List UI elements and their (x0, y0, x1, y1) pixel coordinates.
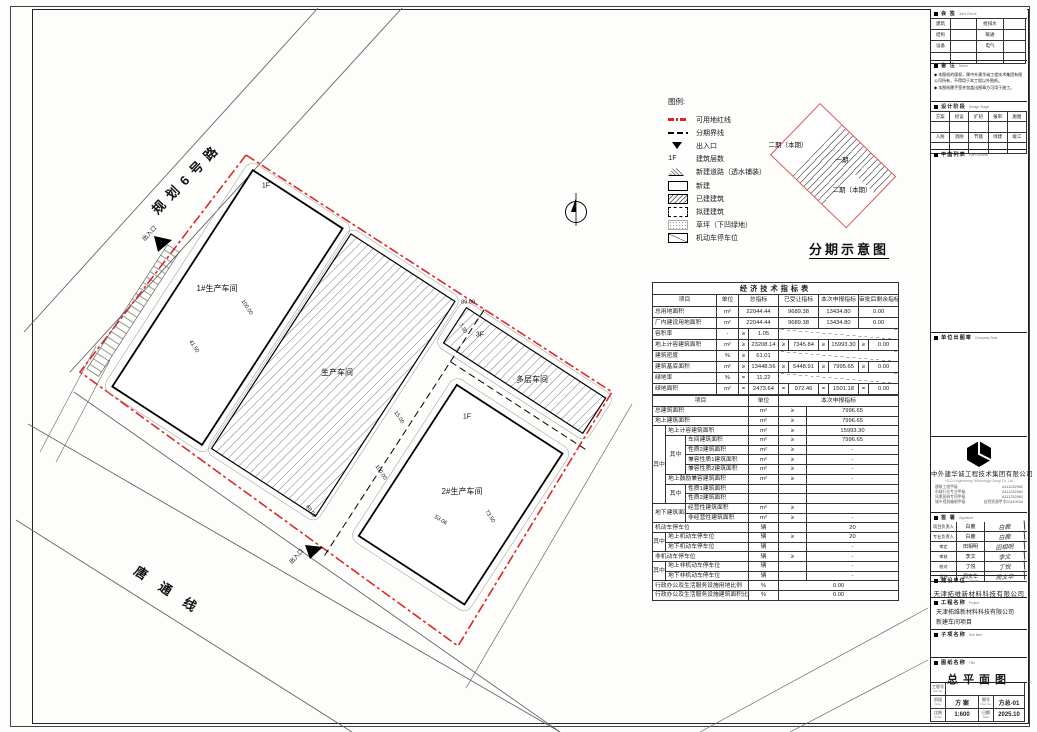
table-cell: 行政办公及生活服务设施用地比例 (653, 581, 749, 591)
table-cell: m² (749, 503, 779, 513)
table-cell: % (717, 373, 739, 384)
note-line: ◆ 本图纸需手签并加盖出图章方可用于施工。 (934, 85, 1024, 91)
company-name-en: HCCI Engineering Technology Group Co.,Lt… (931, 479, 1027, 483)
owner-title-en: Owner (969, 579, 979, 583)
table-row: 兼容性质1建筑面积m²≥- (653, 455, 899, 465)
design-stage-cell: 竣工 (1008, 133, 1027, 143)
table-cell: ≥ (779, 513, 807, 523)
subitem-value (931, 639, 1027, 642)
design-stage-cell: 绿建 (989, 133, 1008, 143)
table-row: 厂内建设用地面积m²22044.449689.3813434.800.00 (653, 318, 899, 329)
legend-item-label: 机动车停车位 (696, 233, 738, 243)
table-cell (779, 571, 807, 581)
owner-section: 建设单位 Owner 天津拓维新材料科技有限公司 (931, 576, 1027, 598)
table-cell: 0.00 (869, 384, 899, 395)
table-cell: 其中 (653, 426, 666, 504)
phasing-label: 一期 (836, 158, 849, 165)
table-cell: m² (749, 474, 779, 484)
title-block: 会 签 Joint Check 建筑给排水结构暖通设备电气 备 注 Notes … (930, 9, 1027, 722)
table-cell: ≥ (779, 362, 789, 373)
grass-legend-icon (668, 220, 690, 230)
table-cell: ≥ (779, 340, 789, 351)
newroad-legend-icon (668, 168, 690, 176)
signature-role: 审核 (931, 552, 957, 561)
table-cell: 辆 (749, 542, 779, 552)
table-row: 行政办公及生活服务设施用地比例%0.00 (653, 581, 899, 591)
table-row: 地下机动车停车位辆- (653, 542, 899, 552)
legend-item: 新建道路（透水铺装） (668, 166, 766, 179)
table-cell: 单位 (717, 295, 739, 307)
design-stage-cell (969, 122, 988, 132)
design-stage-cell: 节能 (969, 133, 988, 143)
table-cell: 其中 (653, 532, 666, 551)
table-cell: 车间建筑面积 (686, 436, 749, 446)
company-name: 中外建华诚工程技术集团有限公司 (931, 469, 1027, 478)
table-cell: 地上机动车停车位 (666, 532, 749, 542)
company-seal-section: 单位出图章 Company Seal (931, 333, 1027, 437)
floor-label: 3F (476, 332, 484, 339)
table-cell: 地上计容建筑面积 (666, 426, 749, 436)
table-row: 项目单位总指标已受让指标本次申报指标审批后剩余指标 (653, 295, 899, 307)
indicator-table-main: 经济技术指标表项目单位总指标已受让指标本次申报指标审批后剩余指标总用地面积m²2… (652, 282, 899, 395)
design-stage-cell (1008, 122, 1027, 132)
design-stage-cell: 扩初 (969, 112, 988, 122)
table-row: 总建筑面积m²≥7996.65 (653, 407, 899, 417)
existbld-legend-icon (668, 194, 690, 204)
table-row: 非机动车停车位辆≥- (653, 552, 899, 562)
entrance-swatch (672, 142, 682, 149)
floors-swatch: 1F (668, 155, 676, 163)
table-cell: m² (749, 416, 779, 426)
table-row: 建筑密度%≥61.01 (653, 351, 899, 362)
table-row: 绿地率%=11.22 (653, 373, 899, 384)
countersign-title: 会 签 (941, 10, 956, 17)
table-cell: - (807, 562, 899, 572)
table-cell (779, 351, 899, 362)
table-cell: m² (717, 384, 739, 395)
table-row: 其中车间建筑面积m²≥7996.65 (653, 436, 899, 446)
section-marker-icon (934, 661, 938, 665)
table-cell: 非机动车停车位 (653, 552, 749, 562)
plan-list-title-en: Plan Number (969, 153, 989, 157)
countersign-cell: 给排水 (977, 19, 1004, 30)
date-label-en: Date (983, 716, 989, 719)
building-label-workshop2: 2#生产车间 (442, 488, 483, 496)
drawing-info-grid: 工程号 Job No. 阶段 Stag. 方 案 图号 Dwg No. 方总-0… (931, 683, 1027, 722)
table-cell: m² (749, 407, 779, 417)
table-cell: 61.01 (749, 351, 779, 362)
table-cell (807, 494, 899, 504)
signature-role: 审定 (931, 542, 957, 551)
signature-section: 签 署 Signature 项目负责人白鹿白鹿专业负责人白鹿白鹿审定田相明田相明… (931, 513, 1027, 576)
table-cell: 辆 (749, 532, 779, 542)
table-cell: m² (717, 307, 739, 318)
table-row: 地下非机动车停车位辆- (653, 571, 899, 581)
table-cell: 20 (807, 532, 899, 542)
table-cell: ≥ (819, 340, 829, 351)
phasing-label: 二期（本期） (833, 188, 872, 195)
signature-role: 校对 (931, 562, 957, 571)
company-seal-title: 单位出图章 (941, 334, 972, 341)
table-cell: ≥ (779, 407, 807, 417)
table-cell: 1501.18 (829, 384, 859, 395)
table-cell: m² (717, 318, 739, 329)
drawing-title-label-en: Title (969, 661, 975, 665)
design-stage-section: 设计阶段 Design Stage 方案初设扩初报审施图人防消防节能绿建竣工 (931, 102, 1027, 150)
table-cell: 机动车停车位 (653, 523, 749, 533)
table-cell: 11.22 (749, 373, 779, 384)
planbld-legend-icon (668, 207, 690, 217)
section-marker-icon (934, 579, 938, 583)
table-cell: 0.00 (869, 340, 899, 351)
table-cell: 其中 (666, 484, 686, 503)
dim-label: 89.00 (461, 300, 475, 306)
table-cell: 本次申报指标 (779, 396, 899, 407)
table-cell (749, 484, 779, 494)
signature-role: 项目负责人 (931, 522, 957, 531)
drawing-title-label: 图纸名称 (941, 659, 966, 666)
table-cell: 辆 (749, 552, 779, 562)
project-name-line: 天津拓维新材料科技有限公司 (936, 609, 1027, 619)
floors-legend-icon: 1F (668, 155, 690, 163)
table-cell: 0.00 (779, 581, 899, 591)
countersign-cell: 建筑 (931, 19, 951, 30)
table-row: 建筑基底面积m²≥13448.56≥5448.91≥7995.65≥0.00 (653, 362, 899, 373)
table-cell (779, 494, 807, 504)
table-cell: 7345.84 (789, 340, 819, 351)
table-row: 地上鼓励兼容建筑面积m²≥- (653, 474, 899, 484)
table-cell: 厂内建设用地面积 (653, 318, 717, 329)
table-cell: % (749, 581, 779, 591)
table-cell (749, 494, 779, 504)
signature-name: 白鹿 (957, 522, 985, 531)
table-row: 地下建筑面积经营性建筑面积m²≥ (653, 503, 899, 513)
table-cell: 兼容性质2建筑面积 (686, 465, 749, 475)
table-cell: 总指标 (739, 295, 779, 307)
countersign-cell (951, 30, 977, 41)
table-cell: ≥ (779, 445, 807, 455)
countersign-cell (1004, 41, 1026, 52)
design-stage-cell: 人防 (931, 133, 950, 143)
table-cell: % (749, 591, 779, 601)
countersign-cell: 结构 (931, 30, 951, 41)
countersign-cell (1004, 30, 1026, 41)
table-cell: ≥ (779, 474, 807, 484)
phasing-label: 二期（本期） (769, 143, 808, 150)
table-cell: 22044.44 (739, 307, 779, 318)
table-cell: 单位 (749, 396, 779, 407)
economic-indicator-tables: 经济技术指标表项目单位总指标已受让指标本次申报指标审批后剩余指标总用地面积m²2… (652, 282, 899, 601)
legend-item: 新建 (668, 179, 766, 192)
table-cell: 审批后剩余指标 (859, 295, 899, 307)
table-cell: 性质2建筑面积 (686, 445, 749, 455)
table-cell: ≥ (779, 436, 807, 446)
design-stage-cell: 施图 (1008, 112, 1027, 122)
scale-label-en: Scale (934, 716, 942, 719)
notes-section: 备 注 Notes ◆ 本图纸的版权，属中外建华诚工程技术集团有限公司所有，不得… (931, 61, 1027, 102)
countersign-cell: 电气 (977, 41, 1004, 52)
table-cell: 建筑密度 (653, 351, 717, 362)
subitem-title: 子项名称 (941, 631, 966, 638)
legend-item: 可用地红线 (668, 113, 766, 126)
legend-item-label: 可用地红线 (696, 115, 731, 125)
legend-item: 机动车停车位 (668, 232, 766, 245)
design-stage-cell: 消防 (950, 133, 969, 143)
table-cell: 经营性建筑面积 (686, 503, 749, 513)
subitem-title-en: Sub Item (969, 633, 983, 637)
floor-label: 1F (262, 183, 270, 190)
legend-item: 草坪（下凹绿地） (668, 219, 766, 232)
table-cell: ≥ (739, 340, 749, 351)
planbld-swatch (668, 207, 688, 217)
table-cell: 0.00 (859, 318, 899, 329)
table-cell: 总建筑面积 (653, 407, 749, 417)
company-logo-icon (965, 440, 993, 468)
table-cell: 15993.30 (829, 340, 859, 351)
table-cell: 5448.91 (789, 362, 819, 373)
legend: 图例: 可用地红线分期界线出入口1F建筑层数新建道路（透水铺装）新建已建建筑拟建… (668, 96, 766, 245)
table-cell: 22044.44 (739, 318, 779, 329)
table-cell: 1.05 (749, 329, 779, 340)
table-row: 地上计容建筑面积m²≥23208.14≥7345.84≥15993.30≥0.0… (653, 340, 899, 351)
table-cell: 行政办公及生活服务设施建筑面积比例 (653, 591, 749, 601)
table-row: 经济技术指标表 (653, 283, 899, 295)
legend-item-label: 出入口 (696, 141, 717, 151)
table-cell: 9689.38 (779, 318, 819, 329)
countersign-section: 会 签 Joint Check 建筑给排水结构暖通设备电气 (931, 9, 1027, 61)
stage-label-en: Stag. (934, 703, 941, 706)
table-cell: 20 (807, 523, 899, 533)
project-name-line: 新建车间项目 (936, 619, 1027, 629)
phasing-caption: 分期示意图 (809, 243, 889, 259)
table-cell: m² (717, 340, 739, 351)
table-cell: 0.00 (779, 591, 899, 601)
table-cell: ≥ (779, 455, 807, 465)
countersign-cell (951, 41, 977, 52)
design-stage-cell: 方案 (931, 112, 950, 122)
company-seal-title-en: Company Seal (975, 336, 997, 340)
stage-value: 方 案 (955, 698, 969, 707)
table-cell (779, 523, 807, 533)
newbld-legend-icon (668, 181, 690, 191)
table-cell (779, 329, 899, 340)
section-marker-icon (934, 12, 938, 16)
table-cell: 兼容性质1建筑面积 (686, 455, 749, 465)
table-cell: 项目 (653, 396, 749, 407)
table-cell: = (779, 384, 789, 395)
legend-title: 图例: (668, 96, 766, 107)
table-cell: 972.46 (789, 384, 819, 395)
table-cell: 项目 (653, 295, 717, 307)
redline-legend-icon (668, 118, 690, 121)
existbld-swatch (668, 194, 688, 204)
table-row: 项目单位本次申报指标 (653, 396, 899, 407)
table-cell: m² (749, 465, 779, 475)
design-stage-cell: 初设 (950, 112, 969, 122)
table-cell: - (807, 542, 899, 552)
notes-title: 备 注 (941, 62, 956, 69)
table-cell: 7995.65 (829, 362, 859, 373)
design-stage-cell (950, 122, 969, 132)
table-cell: 总用地面积 (653, 307, 717, 318)
certificate-number: 自然资源甲字20110024 (984, 500, 1023, 505)
table-cell: - (807, 455, 899, 465)
table-cell: m² (749, 436, 779, 446)
drawing-title-section: 图纸名称 Title 总平面图 (931, 658, 1027, 683)
countersign-cell: 暖通 (977, 30, 1004, 41)
table-cell: ≥ (859, 362, 869, 373)
table-cell (779, 542, 807, 552)
table-cell: 辆 (749, 571, 779, 581)
entrance-legend-icon (668, 142, 690, 149)
table-cell: = (739, 373, 749, 384)
indicator-table-detail: 项目单位本次申报指标总建筑面积m²≥7996.65地上建筑面积m²≥7996.6… (652, 395, 899, 601)
table-cell: 辆 (749, 562, 779, 572)
certificate-name: 城乡规划编制甲级 (935, 500, 965, 505)
countersign-title-en: Joint Check (959, 12, 977, 16)
phaseline-legend-icon (668, 132, 690, 134)
drawing-sheet: 规划6号路唐通线1#生产车间生产车间2#生产车间多层车间1F1F3F出入口出入口… (0, 0, 1037, 732)
table-row: 其中地上非机动车停车位辆- (653, 562, 899, 572)
subitem-section: 子项名称 Sub Item (931, 630, 1027, 658)
table-cell: m² (749, 455, 779, 465)
table-cell: 9689.38 (779, 307, 819, 318)
owner-title: 建设单位 (941, 577, 966, 584)
table-cell: 7996.65 (807, 407, 899, 417)
table-cell: 容积率 (653, 329, 717, 340)
plan-list-section: 平面列表 Plan Number (931, 150, 1027, 333)
table-cell: m² (749, 445, 779, 455)
table-row: 性质2建筑面积m²≥- (653, 445, 899, 455)
table-cell: 15993.30 (807, 426, 899, 436)
table-cell: 13434.80 (819, 307, 859, 318)
project-section: 工程名称 Project 天津拓维新材料科技有限公司新建车间项目 (931, 598, 1027, 630)
table-cell: - (807, 552, 899, 562)
table-cell: 2473.64 (749, 384, 779, 395)
job-no-label-en: Job No. (933, 690, 943, 693)
table-row: 地上建筑面积m²≥7996.65 (653, 416, 899, 426)
table-cell: ≥ (779, 416, 807, 426)
section-marker-icon (934, 633, 938, 637)
section-marker-icon (934, 105, 938, 109)
scale-value: 1:600 (954, 712, 969, 718)
parking-swatch (668, 233, 688, 243)
legend-item-label: 建筑层数 (696, 154, 724, 164)
table-cell: 性质2建筑面积 (686, 494, 749, 504)
dwg-no-value: 方总-01 (999, 698, 1020, 707)
table-row: 其中地上机动车停车位辆≥20 (653, 532, 899, 542)
grass-swatch (668, 220, 688, 230)
table-row: 绿地面积m²=2473.64=972.46=1501.18=0.00 (653, 384, 899, 395)
table-cell: = (739, 384, 749, 395)
legend-item-label: 新建 (696, 181, 710, 191)
table-cell: ≥ (739, 329, 749, 340)
table-cell: - (717, 329, 739, 340)
table-cell: ≥ (779, 426, 807, 436)
certificate-line: 城乡规划编制甲级自然资源甲字20110024 (931, 500, 1027, 505)
table-cell: 性质1建筑面积 (686, 484, 749, 494)
plan-list-title: 平面列表 (941, 151, 966, 158)
table-cell (779, 562, 807, 572)
countersign-cell (951, 19, 977, 30)
table-cell: 地下建筑面积 (653, 503, 686, 522)
table-cell: 辆 (749, 523, 779, 533)
design-stage-cell (989, 122, 1008, 132)
countersign-cell: 设备 (931, 41, 951, 52)
table-cell: 13448.56 (749, 362, 779, 373)
design-stage-title: 设计阶段 (941, 103, 966, 110)
table-cell: - (807, 571, 899, 581)
section-marker-icon (934, 516, 938, 520)
building-label-workshop1: 1#生产车间 (197, 285, 238, 293)
redline-swatch (668, 118, 688, 121)
table-cell: ≥ (859, 340, 869, 351)
legend-item: 拟建建筑 (668, 205, 766, 218)
table-cell: ≥ (779, 503, 807, 513)
table-cell: ≥ (779, 465, 807, 475)
table-cell: 建筑基底面积 (653, 362, 717, 373)
table-cell: - (807, 445, 899, 455)
building-label-multistory: 多层车间 (516, 376, 548, 384)
table-cell: ≥ (779, 552, 807, 562)
design-stage-cell: 报审 (989, 112, 1008, 122)
table-cell: 地上计容建筑面积 (653, 340, 717, 351)
section-marker-icon (934, 153, 938, 157)
table-cell: = (859, 384, 869, 395)
owner-name: 天津拓维新材料科技有限公司 (931, 585, 1027, 598)
table-cell: 7996.65 (807, 436, 899, 446)
table-cell: ≥ (819, 362, 829, 373)
legend-item: 已建建筑 (668, 192, 766, 205)
table-cell (807, 503, 899, 513)
signature-name: 李文 (957, 552, 985, 561)
table-cell: m² (749, 513, 779, 523)
section-marker-icon (934, 601, 938, 605)
table-row: 其中地上计容建筑面积m²≥15993.30 (653, 426, 899, 436)
dwg-no-label-en: Dwg No. (980, 703, 992, 706)
table-cell: 绿地率 (653, 373, 717, 384)
table-row: 其中性质1建筑面积 (653, 484, 899, 494)
table-cell: 经济技术指标表 (653, 283, 899, 295)
table-cell: 地上建筑面积 (653, 416, 749, 426)
table-cell: 已受让指标 (779, 295, 819, 307)
legend-item: 分期界线 (668, 126, 766, 139)
section-marker-icon (934, 64, 938, 68)
newroad-swatch (668, 168, 684, 176)
table-cell: 7996.65 (807, 416, 899, 426)
building-label-workshop-existing: 生产车间 (321, 369, 353, 377)
table-cell (807, 484, 899, 494)
project-title-en: Project (969, 601, 980, 605)
parking-legend-icon (668, 233, 690, 243)
table-row: 行政办公及生活服务设施建筑面积比例%0.00 (653, 591, 899, 601)
note-line: ◆ 本图纸的版权，属中外建华诚工程技术集团有限公司所有，不得用于本工程以外图纸。 (934, 72, 1024, 84)
notes-title-en: Notes (959, 64, 968, 68)
table-cell: 地下机动车停车位 (666, 542, 749, 552)
floor-label: 1F (463, 414, 471, 421)
legend-item-label: 拟建建筑 (696, 207, 724, 217)
table-cell: - (807, 474, 899, 484)
legend-item-label: 草坪（下凹绿地） (696, 220, 752, 230)
table-row: 非经营性建筑面积m²≥- (653, 513, 899, 523)
table-cell: 23208.14 (749, 340, 779, 351)
table-cell: 地上非机动车停车位 (666, 562, 749, 572)
table-cell: 13434.80 (819, 318, 859, 329)
design-stage-title-en: Design Stage (969, 105, 989, 109)
date-value: 2025.10 (998, 712, 1020, 718)
table-cell: m² (717, 362, 739, 373)
table-cell: 地下非机动车停车位 (666, 571, 749, 581)
